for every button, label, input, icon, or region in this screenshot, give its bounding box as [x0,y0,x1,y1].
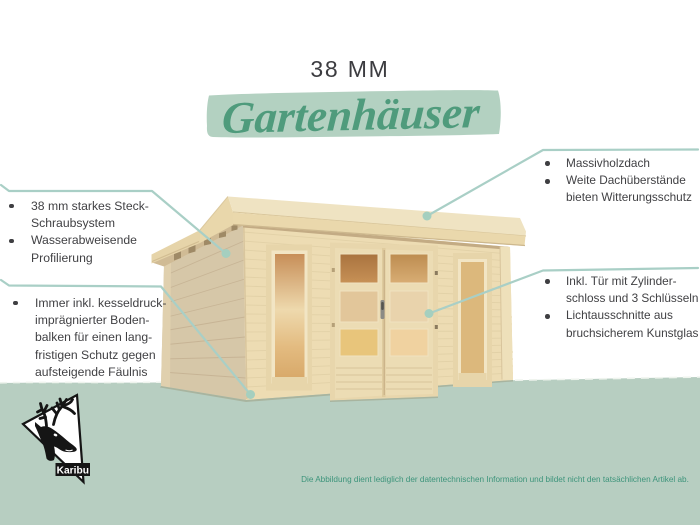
svg-text:Karibu: Karibu [57,466,89,477]
